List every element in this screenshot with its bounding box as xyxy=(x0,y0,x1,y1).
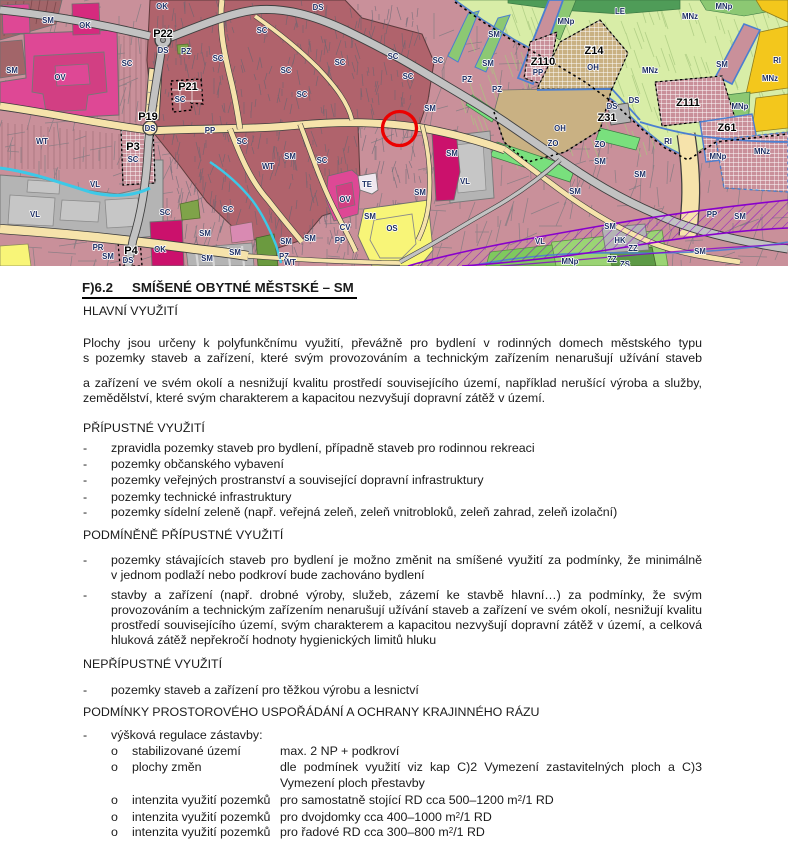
svg-text:SC: SC xyxy=(335,58,346,67)
svg-text:SM: SM xyxy=(634,170,646,179)
svg-text:PR: PR xyxy=(93,243,104,252)
svg-text:WT: WT xyxy=(262,162,274,171)
svg-text:SC: SC xyxy=(433,56,444,65)
svg-text:PP: PP xyxy=(335,236,345,245)
svg-text:RI: RI xyxy=(773,56,781,65)
svg-text:P3: P3 xyxy=(126,141,139,153)
svg-text:Z31: Z31 xyxy=(598,112,617,124)
svg-text:ZO: ZO xyxy=(595,140,606,149)
svg-text:PZ: PZ xyxy=(462,75,472,84)
svg-text:DS: DS xyxy=(123,256,134,265)
svg-text:MNz: MNz xyxy=(642,66,658,75)
svg-text:P22: P22 xyxy=(153,28,173,40)
svg-text:SM: SM xyxy=(280,237,292,246)
svg-text:Z61: Z61 xyxy=(718,122,737,134)
svg-text:OK: OK xyxy=(154,245,166,254)
svg-text:CV: CV xyxy=(340,223,352,232)
svg-text:SC: SC xyxy=(297,90,308,99)
svg-text:OV: OV xyxy=(339,195,351,204)
svg-text:OK: OK xyxy=(79,21,91,30)
svg-text:SM: SM xyxy=(199,229,211,238)
svg-text:SM: SM xyxy=(446,149,458,158)
svg-text:SC: SC xyxy=(160,208,171,217)
svg-text:OS: OS xyxy=(386,224,397,233)
svg-text:MNp: MNp xyxy=(716,2,733,11)
svg-text:PZ: PZ xyxy=(492,85,502,94)
svg-text:PZ: PZ xyxy=(181,47,191,56)
svg-text:SC: SC xyxy=(122,59,133,68)
svg-text:OV: OV xyxy=(54,73,66,82)
svg-text:SM: SM xyxy=(716,60,728,69)
svg-text:SC: SC xyxy=(388,52,399,61)
svg-text:SC: SC xyxy=(237,137,248,146)
svg-text:DS: DS xyxy=(629,96,640,105)
svg-text:HK: HK xyxy=(614,236,626,245)
svg-text:SC: SC xyxy=(223,205,234,214)
svg-text:SM: SM xyxy=(569,187,581,196)
svg-text:ZO: ZO xyxy=(548,139,559,148)
svg-text:TE: TE xyxy=(362,180,372,189)
svg-text:MNp: MNp xyxy=(562,257,579,266)
svg-text:VL: VL xyxy=(30,210,40,219)
svg-text:DS: DS xyxy=(158,46,169,55)
svg-text:SM: SM xyxy=(364,212,376,221)
svg-text:WT: WT xyxy=(36,137,48,146)
svg-text:OK: OK xyxy=(156,2,168,11)
svg-text:SM: SM xyxy=(594,157,606,166)
svg-text:SM: SM xyxy=(42,16,54,25)
svg-text:SM: SM xyxy=(229,248,241,257)
svg-text:SM: SM xyxy=(6,66,18,75)
svg-text:SC: SC xyxy=(317,156,328,165)
svg-text:PP: PP xyxy=(533,68,543,77)
svg-text:SM: SM xyxy=(102,252,114,261)
svg-text:MNp: MNp xyxy=(710,152,727,161)
svg-text:SC: SC xyxy=(175,95,186,104)
svg-text:VL: VL xyxy=(90,180,100,189)
svg-text:Z110: Z110 xyxy=(531,56,555,68)
svg-text:ZS: ZS xyxy=(620,260,630,266)
svg-text:SM: SM xyxy=(488,30,500,39)
svg-text:SM: SM xyxy=(304,234,316,243)
svg-text:SM: SM xyxy=(604,222,616,231)
svg-text:DS: DS xyxy=(607,102,618,111)
svg-text:SM: SM xyxy=(201,254,213,263)
svg-text:ZZ: ZZ xyxy=(628,244,638,253)
svg-text:SC: SC xyxy=(403,72,414,81)
svg-text:ZZ: ZZ xyxy=(607,255,617,264)
svg-text:SM: SM xyxy=(482,59,494,68)
svg-text:P19: P19 xyxy=(138,111,158,123)
svg-text:VL: VL xyxy=(535,237,545,246)
svg-text:VL: VL xyxy=(460,177,470,186)
svg-text:MNz: MNz xyxy=(682,12,698,21)
svg-text:WT: WT xyxy=(284,258,296,266)
svg-text:OH: OH xyxy=(587,63,599,72)
svg-text:PP: PP xyxy=(707,210,717,219)
svg-text:MNp: MNp xyxy=(732,102,749,111)
svg-text:SC: SC xyxy=(257,26,268,35)
svg-text:PP: PP xyxy=(205,126,215,135)
svg-text:MNp: MNp xyxy=(558,17,575,26)
svg-text:MNz: MNz xyxy=(754,147,770,156)
svg-text:OH: OH xyxy=(554,124,566,133)
svg-text:MNz: MNz xyxy=(762,74,778,83)
svg-text:SC: SC xyxy=(281,66,292,75)
svg-text:SM: SM xyxy=(734,212,746,221)
svg-text:SM: SM xyxy=(284,152,296,161)
svg-text:SM: SM xyxy=(694,247,706,256)
svg-text:P21: P21 xyxy=(178,81,198,93)
svg-text:SM: SM xyxy=(414,188,426,197)
svg-text:SM: SM xyxy=(424,104,436,113)
svg-text:DS: DS xyxy=(313,3,324,12)
svg-text:RI: RI xyxy=(664,137,672,146)
svg-text:LE: LE xyxy=(615,7,625,16)
svg-text:Z14: Z14 xyxy=(585,45,605,57)
svg-text:SC: SC xyxy=(128,155,139,164)
svg-text:Z111: Z111 xyxy=(676,97,700,109)
svg-text:P4: P4 xyxy=(124,245,138,257)
svg-text:DS: DS xyxy=(145,124,156,133)
svg-text:SC: SC xyxy=(213,54,224,63)
